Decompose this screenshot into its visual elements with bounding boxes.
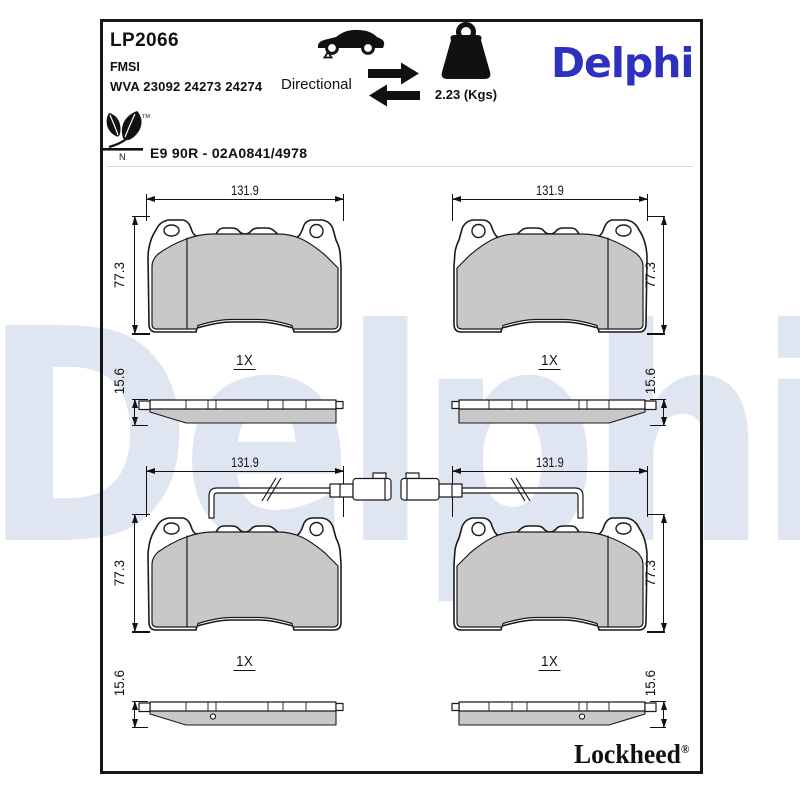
quantity-label: 1X: [452, 653, 648, 671]
weight-icon: [434, 21, 498, 85]
directional-arrows-icon: [368, 59, 420, 107]
brake-pad-profile-view: [451, 701, 657, 729]
brake-pad-profile-view: [451, 399, 657, 427]
delphi-logo: Delphi: [551, 43, 694, 84]
eco-leaf-icon: TM N: [101, 109, 151, 161]
width-value: 131.9: [231, 183, 259, 198]
quantity-label: 1X: [147, 352, 343, 370]
width-value: 131.9: [536, 183, 564, 198]
thickness-dimension: 15.6: [653, 365, 683, 427]
lockheed-logo: Lockheed®: [574, 739, 689, 770]
sensor-hole: [210, 714, 215, 719]
car-icon: [315, 26, 387, 58]
height-dimension: 77.3: [119, 514, 149, 632]
brake-pad-front-view: [147, 514, 343, 632]
wear-sensor-wire: [206, 472, 394, 518]
part-number: LP2066: [110, 30, 179, 52]
sensor-hole: [579, 714, 584, 719]
height-value: 77.3: [643, 560, 658, 586]
technical-drawing-sheet: Delphi LP2066 FMSI WVA 23092 24273 24274…: [0, 0, 800, 800]
brake-pad-front-view: [147, 216, 343, 334]
approval-code: E9 90R - 02A0841/4978: [150, 145, 307, 161]
header-separator: [107, 166, 693, 167]
quantity-label: 1X: [452, 352, 648, 370]
brake-pad-front-view: [452, 514, 648, 632]
lockheed-logo-text: Lockheed: [574, 739, 681, 769]
thickness-value: 15.6: [643, 670, 658, 696]
width-value: 131.9: [536, 455, 564, 470]
brake-pad-profile-view: [138, 701, 344, 729]
quantity-label: 1X: [147, 653, 343, 671]
height-value: 77.3: [112, 560, 127, 586]
registered-mark: ®: [681, 742, 690, 756]
brake-pad-front-view: [452, 216, 648, 334]
wva-numbers: WVA 23092 24273 24274: [110, 79, 262, 94]
thickness-value: 15.6: [112, 368, 127, 394]
thickness-value: 15.6: [643, 368, 658, 394]
height-value: 77.3: [643, 262, 658, 288]
brake-pad-profile-view: [138, 399, 344, 427]
wear-sensor-wire: [398, 472, 586, 518]
height-value: 77.3: [112, 262, 127, 288]
fmsi-label: FMSI: [110, 60, 140, 74]
weight-value: 2.23 (Kgs): [426, 87, 506, 102]
height-dimension: 77.3: [653, 216, 683, 334]
thickness-dimension: 15.6: [653, 667, 683, 729]
width-value: 131.9: [231, 455, 259, 470]
eco-letter: N: [119, 152, 126, 162]
height-dimension: 77.3: [653, 514, 683, 632]
thickness-value: 15.6: [112, 670, 127, 696]
directional-label: Directional: [281, 76, 352, 93]
eco-trademark: TM: [142, 114, 150, 120]
height-dimension: 77.3: [119, 216, 149, 334]
